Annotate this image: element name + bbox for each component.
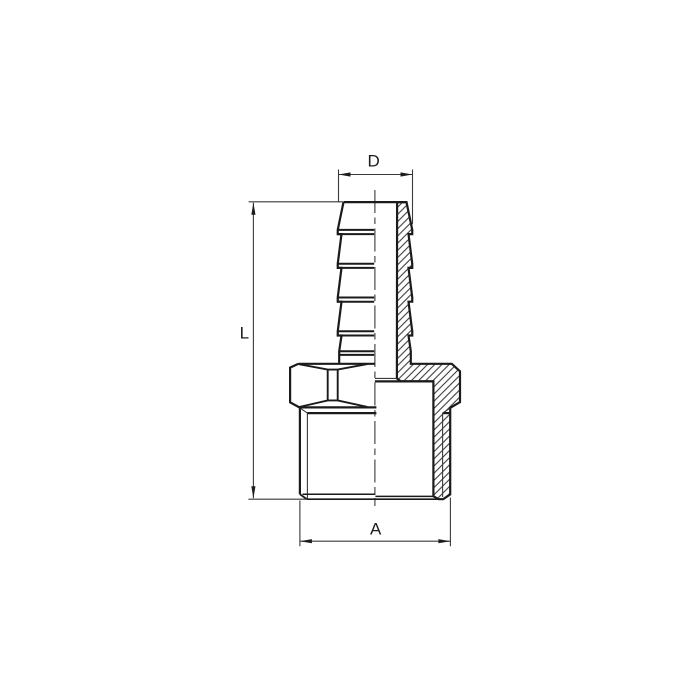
svg-text:D: D	[367, 151, 379, 170]
svg-text:L: L	[240, 323, 249, 342]
svg-text:A: A	[370, 519, 382, 538]
